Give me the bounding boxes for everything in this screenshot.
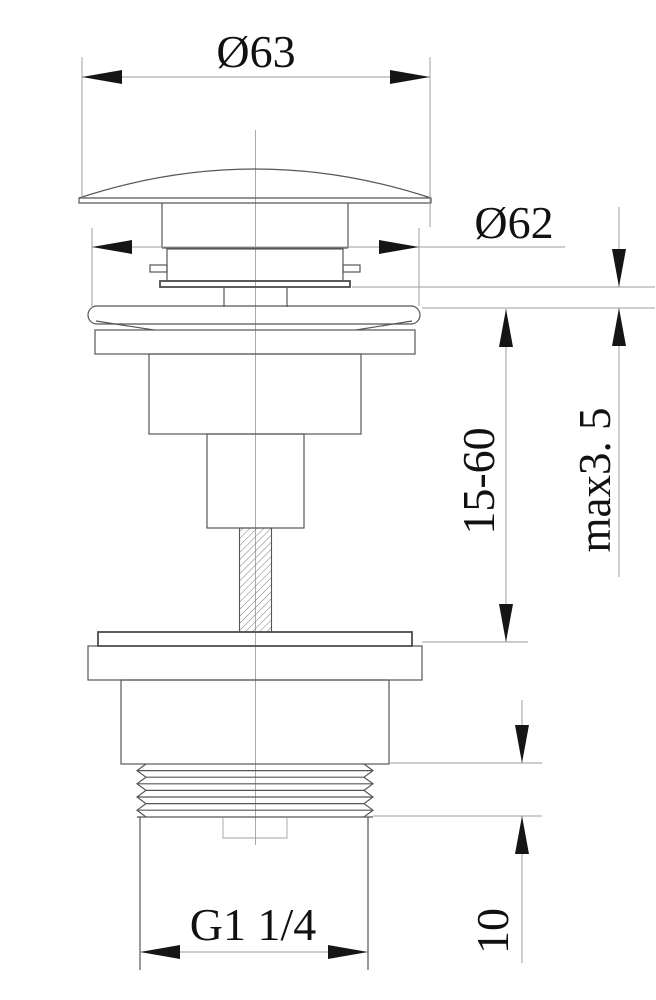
dim-thread-size-label: G1 1/4 — [190, 899, 317, 950]
cap-tab-right — [343, 265, 360, 272]
cap-tab-left — [150, 265, 167, 272]
lift-rod — [240, 528, 272, 632]
dim-adjust-range: 15-60 — [422, 309, 528, 642]
dim-max-thickness-label: max3. 5 — [570, 408, 620, 553]
arrowhead-right — [379, 240, 419, 254]
dim-adjust-range-label: 15-60 — [453, 427, 504, 534]
arrowhead-right — [390, 70, 430, 84]
tailpiece-inner-notch — [223, 817, 287, 838]
arrowhead-left — [82, 70, 122, 84]
cap-base-plate — [160, 281, 350, 287]
thread-right-crest — [364, 764, 373, 817]
cap-dome-arc — [79, 169, 431, 198]
arrowhead-right — [328, 945, 368, 959]
thread-section — [137, 764, 373, 817]
lower-body-block — [121, 680, 389, 764]
dim-thread-length-label: 10 — [467, 908, 518, 954]
lower-flange — [88, 646, 422, 680]
cap-mechanism-block — [167, 249, 343, 281]
body-top-flange — [95, 330, 415, 354]
thread-left-crest — [137, 764, 146, 817]
washer-body — [88, 306, 420, 324]
washer-cone-right — [356, 321, 412, 330]
arrowhead-down — [499, 604, 513, 642]
arrowhead-down — [612, 249, 626, 287]
dim-flange-diameter-label: Ø62 — [474, 197, 553, 248]
arrowhead-up — [499, 309, 513, 347]
lift-rod-threaded-shaft — [240, 528, 272, 632]
body-upper-block — [149, 354, 361, 434]
arrowhead-up — [515, 816, 529, 854]
arrowhead-up — [612, 308, 626, 346]
technical-drawing-sheet: Ø63 Ø62 max3. 5 15-60 10 — [0, 0, 656, 1000]
arrowhead-left — [92, 240, 132, 254]
plug-cap — [79, 169, 431, 307]
arrowhead-left — [140, 945, 180, 959]
dim-thread-size: G1 1/4 — [140, 899, 368, 959]
lower-plate — [98, 632, 412, 646]
popup-waste-drawing: Ø63 Ø62 max3. 5 15-60 10 — [0, 0, 656, 1000]
valve-body — [95, 330, 415, 528]
arrowhead-down — [515, 725, 529, 763]
sealing-washer — [88, 306, 420, 330]
washer-cone-left — [96, 321, 154, 330]
lower-body — [88, 632, 422, 764]
dim-thread-length: 10 — [373, 700, 542, 963]
dim-cap-diameter-label: Ø63 — [216, 26, 295, 77]
dim-cap-diameter: Ø63 — [82, 26, 430, 227]
dim-flange-diameter: Ø62 — [92, 197, 565, 308]
cap-rim — [79, 198, 431, 203]
